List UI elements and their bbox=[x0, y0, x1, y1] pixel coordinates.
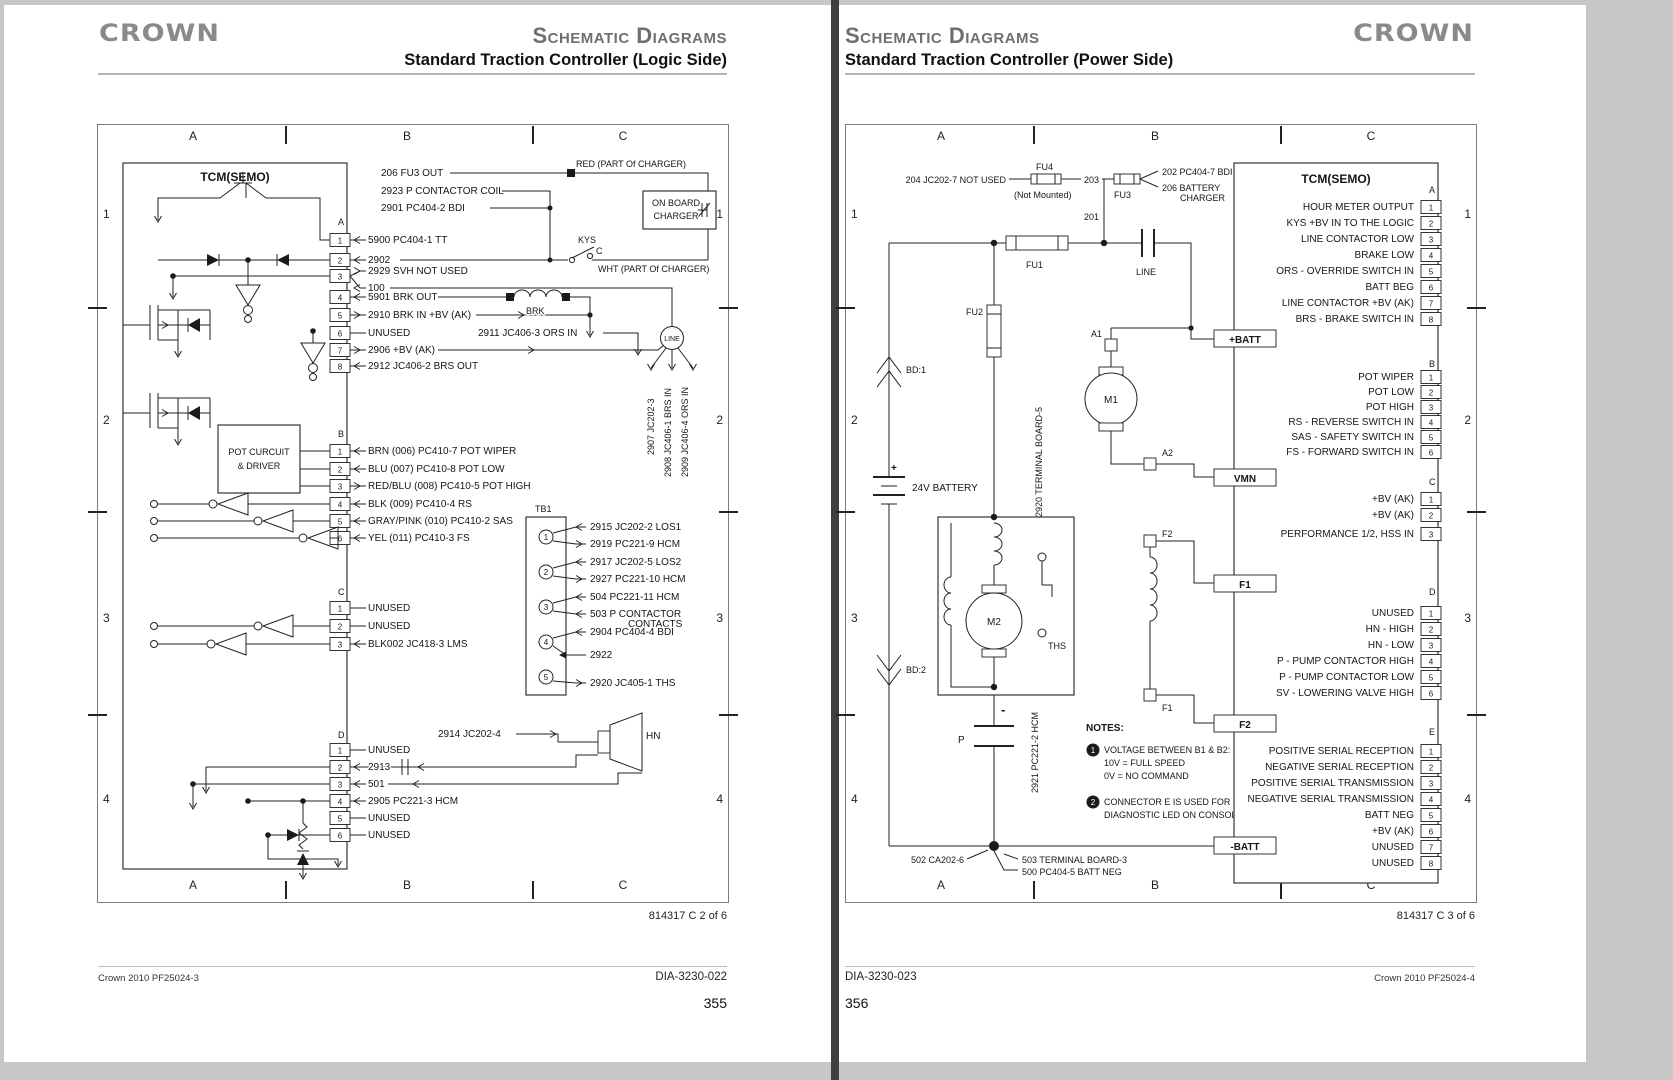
schematic-frame-left: A B C A B C 1 2 3 4 1 2 3 4 bbox=[97, 124, 729, 903]
pin-label: BRS - BRAKE SWITCH IN bbox=[1296, 314, 1414, 325]
page-number: 356 bbox=[845, 995, 868, 1011]
pin-label: P - PUMP CONTACTOR LOW bbox=[1279, 672, 1414, 683]
page-title: Schematic Diagrams bbox=[845, 23, 1040, 49]
vertical-wire-label: 2907 JC202-3 bbox=[646, 398, 656, 455]
page-subtitle: Standard Traction Controller (Logic Side… bbox=[404, 51, 727, 70]
footer-left: Crown 2010 PF25024-3 bbox=[98, 973, 199, 984]
svg-text:4: 4 bbox=[338, 798, 343, 807]
brake-coil-label: BRK bbox=[526, 306, 545, 316]
bd1-label: BD:1 bbox=[906, 365, 926, 375]
svg-text:2: 2 bbox=[338, 623, 343, 632]
svg-text:2: 2 bbox=[1429, 512, 1434, 521]
wire-label: 206 FU3 OUT bbox=[381, 168, 443, 179]
svg-text:2: 2 bbox=[338, 466, 343, 475]
svg-text:3: 3 bbox=[1429, 642, 1434, 651]
connector-b: B 1 2 3 4 5 6 BRN bbox=[300, 429, 531, 545]
svg-text:3: 3 bbox=[1429, 780, 1434, 789]
svg-text:6: 6 bbox=[1429, 284, 1434, 293]
footer-left: DIA-3230-023 bbox=[845, 971, 917, 983]
svg-text:2: 2 bbox=[338, 764, 343, 773]
footer-rule bbox=[845, 966, 1475, 967]
pin-label: UNUSED bbox=[368, 745, 410, 756]
pin-label: P - PUMP CONTACTOR HIGH bbox=[1277, 656, 1414, 667]
page-title: Schematic Diagrams bbox=[532, 23, 727, 49]
wire-label: 206 BATTERY bbox=[1162, 183, 1220, 193]
wire-label: WHT (PART Of CHARGER) bbox=[598, 264, 709, 274]
svg-text:7: 7 bbox=[1429, 844, 1434, 853]
wire-label: 502 CA202-6 bbox=[911, 855, 964, 865]
line-contactor-label: LINE bbox=[1136, 267, 1156, 277]
svg-text:8: 8 bbox=[1429, 860, 1434, 869]
pin-label: 2910 BRK IN +BV (AK) bbox=[368, 310, 471, 321]
pin-label: UNUSED bbox=[368, 830, 410, 841]
pin-label: 5900 PC404-1 TT bbox=[368, 235, 447, 246]
connector-label: C bbox=[1429, 477, 1436, 487]
pin-label: UNUSED bbox=[368, 328, 410, 339]
svg-text:3: 3 bbox=[1429, 531, 1434, 540]
ths-label: THS bbox=[1048, 641, 1066, 651]
battery-label: 24V BATTERY bbox=[912, 483, 978, 494]
svg-text:TCM(SEMO): TCM(SEMO) bbox=[200, 170, 269, 184]
crown-logo: CROWN bbox=[1353, 20, 1474, 47]
svg-text:3: 3 bbox=[1429, 404, 1434, 413]
pin-label: 501 bbox=[368, 779, 385, 790]
svg-text:1: 1 bbox=[338, 747, 343, 756]
connector-label: D bbox=[1429, 587, 1436, 597]
svg-text:1: 1 bbox=[1429, 610, 1434, 619]
svg-text:2: 2 bbox=[1429, 764, 1434, 773]
svg-text:5: 5 bbox=[338, 815, 343, 824]
pin-label: 2905 PC221-3 HCM bbox=[368, 796, 458, 807]
m1-motor: A1 M1 A2 bbox=[1085, 328, 1214, 477]
fuse-label: FU2 bbox=[966, 307, 983, 317]
battery-branch bbox=[873, 243, 905, 846]
tb1-wire-label: 2915 JC202-2 LOS1 bbox=[590, 522, 682, 533]
charger-labels: 206 FU3 OUT RED (PART Of CHARGER) ON BOA… bbox=[381, 159, 709, 274]
footer-right: Crown 2010 PF25024-4 bbox=[1374, 973, 1475, 984]
pot-circuit-box: POT CURCUIT & DRIVER bbox=[218, 425, 300, 493]
svg-text:8: 8 bbox=[338, 363, 343, 372]
svg-text:1: 1 bbox=[338, 448, 343, 457]
pin-label: KYS +BV IN TO THE LOGIC bbox=[1286, 218, 1414, 229]
charger-label: ON BOARD bbox=[652, 198, 701, 208]
wire-label: 202 PC404-7 BDI bbox=[1162, 167, 1233, 177]
svg-text:3: 3 bbox=[338, 273, 343, 282]
logic-side-schematic: TCM(SEMO) bbox=[98, 125, 728, 902]
svg-text:5: 5 bbox=[1429, 812, 1434, 821]
svg-text:6: 6 bbox=[1429, 828, 1434, 837]
edge-terminal: F1 bbox=[1239, 580, 1251, 591]
pin-label: 2912 JC406-2 BRS OUT bbox=[368, 361, 478, 372]
terminal-label: F1 bbox=[1162, 703, 1173, 713]
field-winding: F2 F1 bbox=[1144, 529, 1214, 723]
connector-label: B bbox=[1429, 359, 1435, 369]
pin-label: BATT BEG bbox=[1365, 282, 1414, 293]
svg-text:5: 5 bbox=[1429, 434, 1434, 443]
tb1-wire-label: 2927 PC221-10 HCM bbox=[590, 574, 686, 585]
wire-label: 503 TERMINAL BOARD-3 bbox=[1022, 855, 1127, 865]
pin-label: HN - LOW bbox=[1368, 640, 1415, 651]
main-bus bbox=[889, 229, 1214, 339]
horn-label: HN bbox=[646, 731, 660, 742]
tb1-wire-label: 2919 PC221-9 HCM bbox=[590, 539, 680, 550]
page-number: 355 bbox=[704, 995, 727, 1011]
note-line: 0V = NO COMMAND bbox=[1104, 771, 1189, 781]
svg-text:1: 1 bbox=[1429, 748, 1434, 757]
wire-label: 2901 PC404-2 BDI bbox=[381, 203, 465, 214]
pin-label: UNUSED bbox=[368, 813, 410, 824]
terminal-label: F2 bbox=[1162, 529, 1173, 539]
pin-label: +BV (AK) bbox=[1372, 826, 1414, 837]
pin-label: UNUSED bbox=[1372, 858, 1414, 869]
svg-text:5: 5 bbox=[338, 518, 343, 527]
pin-label: 2902 bbox=[368, 255, 391, 266]
fuse-label: FU3 bbox=[1114, 190, 1131, 200]
wire-label: 204 JC202-7 NOT USED bbox=[906, 175, 1007, 185]
wire-label: 201 bbox=[1084, 212, 1099, 222]
note-line: DIAGNOSTIC LED ON CONSOLE. bbox=[1104, 810, 1245, 820]
fuse-note: (Not Mounted) bbox=[1014, 190, 1072, 200]
pin-label: NEGATIVE SERIAL RECEPTION bbox=[1265, 762, 1414, 773]
terminal-label: A1 bbox=[1091, 329, 1102, 339]
pin-label: FS - FORWARD SWITCH IN bbox=[1286, 447, 1414, 458]
pin-label: BRAKE LOW bbox=[1355, 250, 1415, 261]
connector-a: A 1 2 3 4 5 6 7 8 bbox=[330, 217, 672, 373]
svg-text:2: 2 bbox=[338, 257, 343, 266]
pin-label: 5901 BRK OUT bbox=[368, 292, 437, 303]
fuse-label: FU1 bbox=[1026, 260, 1043, 270]
page-356: Schematic Diagrams Standard Traction Con… bbox=[839, 5, 1586, 1062]
connector-label: B bbox=[338, 429, 344, 439]
pot-box-label: POT CURCUIT bbox=[228, 447, 290, 457]
pin-label: SV - LOWERING VALVE HIGH bbox=[1276, 688, 1414, 699]
pin-label: BRN (006) PC410-7 POT WIPER bbox=[368, 446, 516, 457]
svg-text:2: 2 bbox=[544, 568, 549, 577]
tb1-wire-label: 504 PC221-11 HCM bbox=[590, 592, 679, 603]
svg-text:4: 4 bbox=[1429, 796, 1434, 805]
svg-text:3: 3 bbox=[338, 483, 343, 492]
pin-label: LINE CONTACTOR LOW bbox=[1301, 234, 1415, 245]
vertical-wire-label: 2909 JC406-4 ORS IN bbox=[680, 387, 690, 477]
p-capacitor: - P 2921 PC221-2 HCM 502 CA202-6 503 TER… bbox=[889, 695, 1214, 877]
svg-text:3: 3 bbox=[544, 603, 549, 612]
wire-label: 2911 JC406-3 ORS IN bbox=[478, 328, 577, 339]
note-line: 10V = FULL SPEED bbox=[1104, 758, 1185, 768]
svg-text:7: 7 bbox=[1429, 300, 1434, 309]
svg-text:3: 3 bbox=[338, 641, 343, 650]
svg-text:2: 2 bbox=[1429, 626, 1434, 635]
svg-text:1: 1 bbox=[1429, 496, 1434, 505]
line-coil-label: LINE bbox=[664, 336, 680, 343]
svg-text:3: 3 bbox=[1429, 236, 1434, 245]
pin-label: 2906 +BV (AK) bbox=[368, 345, 435, 356]
pin-label: PERFORMANCE 1/2, HSS IN bbox=[1281, 529, 1414, 540]
bd2-label: BD:2 bbox=[906, 665, 926, 675]
svg-text:6: 6 bbox=[1429, 449, 1434, 458]
drawing-number: 814317 C 3 of 6 bbox=[1397, 910, 1475, 922]
svg-text:2: 2 bbox=[1429, 389, 1434, 398]
notes-heading: NOTES: bbox=[1086, 723, 1124, 734]
pin-label: HOUR METER OUTPUT bbox=[1303, 202, 1414, 213]
battery-plus: + bbox=[891, 463, 897, 474]
wire-label: CHARGER bbox=[1180, 193, 1226, 203]
footer-rule bbox=[98, 966, 727, 967]
svg-text:1: 1 bbox=[338, 605, 343, 614]
pin-label: POT HIGH bbox=[1366, 402, 1414, 413]
charger-label: CHARGER bbox=[653, 211, 699, 221]
minus-label: - bbox=[1001, 702, 1005, 717]
svg-text:6: 6 bbox=[1429, 690, 1434, 699]
tb1-terminal-block: TB1 1 2 3 4 5 bbox=[526, 504, 686, 695]
wire-label: 203 bbox=[1084, 175, 1099, 185]
pin-label: UNUSED bbox=[368, 621, 410, 632]
svg-text:4: 4 bbox=[544, 638, 549, 647]
pin-label: RED/BLU (008) PC410-5 POT HIGH bbox=[368, 481, 531, 492]
pin-label: BATT NEG bbox=[1365, 810, 1414, 821]
tcm-box: TCM(SEMO) bbox=[123, 163, 347, 869]
connector-label: C bbox=[338, 587, 345, 597]
pin-label: POSITIVE SERIAL RECEPTION bbox=[1269, 746, 1414, 757]
pin-label: 2913 bbox=[368, 762, 391, 773]
pin-label: HN - HIGH bbox=[1366, 624, 1414, 635]
vertical-wire-label: 2921 PC221-2 HCM bbox=[1030, 712, 1040, 793]
tb1-wire-label: 2922 bbox=[590, 650, 613, 661]
fuse-label: FU4 bbox=[1036, 162, 1053, 172]
pin-label: UNUSED bbox=[368, 603, 410, 614]
svg-text:4: 4 bbox=[1429, 252, 1434, 261]
fuse-chain-labels: 204 JC202-7 NOT USED FU4 (Not Mounted) 2… bbox=[906, 162, 1233, 222]
m2-motor-box: M2 THS bbox=[938, 514, 1074, 695]
wire-label: 2923 P CONTACTOR COIL bbox=[381, 186, 504, 197]
crown-logo: CROWN bbox=[99, 20, 220, 47]
edge-terminal: F2 bbox=[1239, 720, 1251, 731]
svg-text:3: 3 bbox=[338, 781, 343, 790]
pin-label: RS - REVERSE SWITCH IN bbox=[1288, 417, 1414, 428]
edge-terminal: +BATT bbox=[1229, 335, 1261, 346]
svg-text:TCM(SEMO): TCM(SEMO) bbox=[1301, 172, 1370, 186]
svg-text:1: 1 bbox=[544, 533, 549, 542]
kys-switch-label: KYS bbox=[578, 235, 596, 245]
svg-text:6: 6 bbox=[338, 535, 343, 544]
connector-label: A bbox=[338, 217, 344, 227]
header-rule bbox=[845, 73, 1475, 75]
svg-text:5: 5 bbox=[1429, 268, 1434, 277]
pin-label: ORS - OVERRIDE SWITCH IN bbox=[1276, 266, 1414, 277]
kys-c-label: C bbox=[596, 246, 603, 256]
svg-text:5: 5 bbox=[338, 312, 343, 321]
svg-text:1: 1 bbox=[338, 237, 343, 246]
pin-label: YEL (011) PC410-3 FS bbox=[368, 533, 470, 544]
motor-label: M1 bbox=[1104, 395, 1118, 406]
pin-label: BLK002 JC418-3 LMS bbox=[368, 639, 468, 650]
pin-label: GRAY/PINK (010) PC410-2 SAS bbox=[368, 516, 513, 527]
connector-label: E bbox=[1429, 727, 1435, 737]
pin-label: POT LOW bbox=[1368, 387, 1414, 398]
pin-label: UNUSED bbox=[1372, 608, 1414, 619]
terminal-label: A2 bbox=[1162, 448, 1173, 458]
pin-label: LINE CONTACTOR +BV (AK) bbox=[1282, 298, 1414, 309]
vertical-wire-label: 2920 TERMINAL BOARD-5 bbox=[1034, 407, 1044, 517]
pin-label: POT WIPER bbox=[1358, 372, 1414, 383]
pin-label: +BV (AK) bbox=[1372, 494, 1414, 505]
power-side-schematic: 204 JC202-7 NOT USED FU4 (Not Mounted) 2… bbox=[846, 125, 1476, 902]
connector-label: D bbox=[338, 730, 345, 740]
note-line: CONNECTOR E IS USED FOR bbox=[1104, 797, 1231, 807]
page-355: CROWN Schematic Diagrams Standard Tracti… bbox=[4, 5, 831, 1062]
pin-label: POSITIVE SERIAL TRANSMISSION bbox=[1251, 778, 1414, 789]
tb1-wire-label: 2920 JC405-1 THS bbox=[590, 678, 676, 689]
header-rule bbox=[98, 73, 727, 75]
pin-label: UNUSED bbox=[1372, 842, 1414, 853]
fu2-branch bbox=[987, 243, 1001, 517]
svg-text:4: 4 bbox=[338, 501, 343, 510]
tb1-wire-label: 2917 JC202-5 LOS2 bbox=[590, 557, 682, 568]
svg-text:4: 4 bbox=[338, 294, 343, 303]
pin-label: 2929 SVH NOT USED bbox=[368, 266, 468, 277]
svg-text:1: 1 bbox=[1429, 374, 1434, 383]
motor-label: M2 bbox=[987, 617, 1001, 628]
pin-label: NEGATIVE SERIAL TRANSMISSION bbox=[1247, 794, 1414, 805]
svg-text:8: 8 bbox=[1429, 316, 1434, 325]
wire-label: 2914 JC202-4 bbox=[438, 729, 501, 740]
capacitor-label: P bbox=[958, 735, 965, 746]
note-line: VOLTAGE BETWEEN B1 & B2: bbox=[1104, 745, 1230, 755]
footer-right: DIA-3230-022 bbox=[655, 971, 727, 983]
edge-terminal: VMN bbox=[1234, 474, 1256, 485]
manual-spread: CROWN Schematic Diagrams Standard Tracti… bbox=[0, 0, 1673, 1080]
page-gutter bbox=[831, 0, 839, 1080]
pin-label: SAS - SAFETY SWITCH IN bbox=[1291, 432, 1414, 443]
svg-text:1: 1 bbox=[1429, 204, 1434, 213]
pot-box-label: & DRIVER bbox=[238, 461, 281, 471]
connector-d: D 1 2 3 4 5 6 bbox=[330, 713, 660, 842]
pin-label: +BV (AK) bbox=[1372, 510, 1414, 521]
svg-text:2: 2 bbox=[1091, 798, 1096, 807]
svg-text:2: 2 bbox=[1429, 220, 1434, 229]
horn-symbol bbox=[598, 713, 642, 771]
svg-text:4: 4 bbox=[1429, 419, 1434, 428]
wire-label: RED (PART Of CHARGER) bbox=[576, 159, 686, 169]
tb1-label: TB1 bbox=[535, 504, 552, 514]
edge-terminal: -BATT bbox=[1230, 842, 1259, 853]
svg-text:5: 5 bbox=[1429, 674, 1434, 683]
wire-label: 500 PC404-5 BATT NEG bbox=[1022, 867, 1122, 877]
tb1-wire-label: 2904 PC404-4 BDI bbox=[590, 627, 674, 638]
vertical-wire-label: 2908 JC406-1 BRS IN bbox=[663, 388, 673, 477]
svg-text:6: 6 bbox=[338, 832, 343, 841]
svg-text:1: 1 bbox=[1091, 746, 1096, 755]
pin-label: BLK (009) PC410-4 RS bbox=[368, 499, 472, 510]
connector-label: A bbox=[1429, 185, 1435, 195]
page-subtitle: Standard Traction Controller (Power Side… bbox=[845, 51, 1173, 70]
svg-text:5: 5 bbox=[544, 673, 549, 682]
drawing-number: 814317 C 2 of 6 bbox=[649, 910, 727, 922]
notes-block: NOTES: 1 VOLTAGE BETWEEN B1 & B2: 10V = … bbox=[1086, 723, 1245, 820]
svg-text:7: 7 bbox=[338, 347, 343, 356]
brake-coil: BRK 2911 JC406-3 ORS IN bbox=[438, 290, 664, 355]
line-coil: LINE 2907 JC202-3 2908 JC406-1 BRS IN 29… bbox=[646, 327, 697, 478]
svg-text:6: 6 bbox=[338, 330, 343, 339]
svg-text:4: 4 bbox=[1429, 658, 1434, 667]
schematic-frame-right: A B C A B C 1 2 3 4 1 2 3 4 bbox=[845, 124, 1477, 903]
pin-label: BLU (007) PC410-8 POT LOW bbox=[368, 464, 505, 475]
